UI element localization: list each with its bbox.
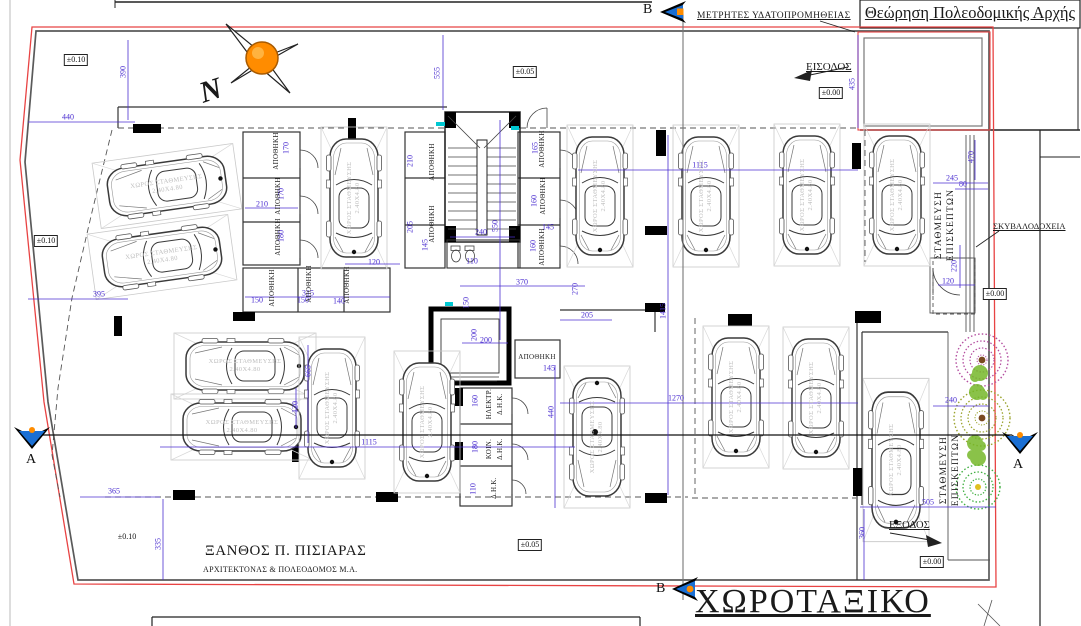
dimension-label: 395	[93, 290, 105, 299]
dimension-label: 505	[922, 498, 934, 507]
dimension-label: 80	[959, 180, 967, 189]
section-letter-b-top: B	[643, 2, 652, 18]
dimension-label: 240	[945, 396, 957, 405]
sun-icon	[246, 42, 278, 74]
water-meters-label: ΜΕΤΡΗΤΕΣ ΥΔΑΤΟΠΡΟΜΗΘΕΙΑΣ	[697, 11, 851, 21]
dimension-label: 370	[516, 278, 528, 287]
room-label: ΗΛΕΚΤΡ.	[485, 389, 493, 419]
elevation-marker: ±0.10	[64, 54, 88, 66]
dimension-label: 110	[469, 483, 478, 495]
room-label: ΑΠΟΘΗΚΗ	[268, 269, 276, 307]
room-label: Δ.Η.Κ.	[496, 438, 504, 460]
north-compass	[226, 24, 298, 93]
elevation-marker: ±0.00	[920, 556, 944, 568]
visitor-parking-label-bottom: ΣΤΑΘΜΕΥΣΗ ΕΠΙΣΚΕΠΤΩΝ	[938, 434, 962, 506]
parking-space-label: ΧΩΡΟΣ ΣΤΑΘΜΕΥΣΗΣ2.40X4.80	[209, 358, 282, 374]
room-label: ΑΠΟΘΗΚΗ	[274, 218, 282, 256]
parking-space-label: ΧΩΡΟΣ ΣΤΑΘΜΕΥΣΗΣ2.40X4.80	[808, 362, 824, 435]
parking-space-label: ΧΩΡΟΣ ΣΤΑΘΜΕΥΣΗΣ2.40X4.80	[324, 372, 340, 445]
dimension-label: 360	[858, 527, 867, 539]
architect-role: ΑΡΧΙΤΕΚΤΟΝΑΣ & ΠΟΛΕΟΔΟΜΟΣ Μ.Α.	[203, 565, 357, 574]
room-label: ΑΠΟΘΗΚΗ	[272, 132, 280, 170]
parking-space-label: ΧΩΡΟΣ ΣΤΑΘΜΕΥΣΗΣ2.40X4.80	[888, 424, 904, 497]
parking-space-label: ΧΩΡΟΣ ΣΤΑΘΜΕΥΣΗΣ2.40X4.80	[346, 162, 362, 235]
dimension-label: 160	[471, 395, 480, 407]
room-label: ΑΠΟΘΗΚΗ	[428, 143, 436, 181]
dimension-label: 365	[108, 487, 120, 496]
room-label: ΑΠΟΘΗΚΗ	[538, 130, 546, 168]
dimension-label: 160	[530, 195, 539, 207]
sheet-frame	[10, 0, 1080, 626]
dimension-label: 240	[475, 228, 487, 237]
elevation-marker: ±0.05	[513, 66, 537, 78]
dimension-label: 205	[581, 311, 593, 320]
dimension-label: 160	[529, 240, 538, 252]
dimension-label: 440	[62, 113, 74, 122]
room-label: ΑΠΟΘΗΚΗ	[274, 177, 282, 215]
room-label: ΑΠΟΘΗΚΗ	[428, 205, 436, 243]
room-label: ΑΠΟΘΗΚΗ	[518, 353, 556, 361]
bins-leader	[976, 231, 999, 247]
dimension-label: 120	[942, 277, 954, 286]
dimension-label: 145	[543, 364, 555, 373]
approval-title: Θεώρηση Πολεοδομικής Αρχής	[860, 3, 1080, 23]
section-marker-a-left	[14, 427, 50, 449]
parking-space-label: ΧΩΡΟΣ ΣΤΑΘΜΕΥΣΗΣ2.40X4.80	[419, 386, 435, 459]
parking-space-label: ΧΩΡΟΣ ΣΤΑΘΜΕΥΣΗΣ2.40X4.80	[206, 419, 279, 435]
dimension-label: 245	[946, 174, 958, 183]
landscape-strip	[954, 334, 1010, 509]
parking-space-label: ΧΩΡΟΣ ΣΤΑΘΜΕΥΣΗΣ2.40X4.80	[728, 361, 744, 434]
dimension-label: 270	[571, 283, 580, 295]
drawing-title: ΧΩΡΟΤΑΞΙΚΟ	[695, 583, 931, 621]
section-letter-b-bottom: B	[656, 581, 665, 597]
dimension-label: 170	[282, 142, 291, 154]
section-letter-a-right: A	[1013, 457, 1023, 473]
elevation-marker: ±0.10	[34, 235, 58, 247]
dimension-label: 220	[950, 260, 959, 272]
room-label: Δ.Η.Κ.	[490, 477, 498, 499]
room-label: Δ.Η.Κ.	[496, 393, 504, 415]
elevation-marker: ±0.05	[518, 539, 542, 551]
dimension-label: 110	[466, 257, 478, 266]
dimension-label: 200	[470, 329, 479, 341]
entrance-label: ΕΙΣΟΔΟΣ	[806, 61, 852, 73]
room-label: ΑΠΟΘΗΚΗ	[305, 265, 313, 303]
dimension-label: 550	[491, 220, 500, 232]
dimension-label: 210	[406, 155, 415, 167]
dimension-label: 470	[967, 151, 976, 163]
dimension-label: 120	[368, 258, 380, 267]
dimension-label: 665	[304, 365, 313, 377]
dimension-label: 555	[433, 67, 442, 79]
visitor-parking-label-top: ΣΤΑΘΜΕΥΣΗ ΕΠΙΣΚΕΠΤΩΝ	[933, 189, 957, 261]
bushes	[967, 365, 988, 466]
section-marker-a-right	[1002, 432, 1038, 454]
dimension-label: 440	[547, 406, 556, 418]
parking-space-label: ΧΩΡΟΣ ΣΤΑΘΜΕΥΣΗΣ2.40X4.80	[799, 159, 815, 232]
dimension-label: 180	[471, 441, 480, 453]
tree-green	[956, 465, 1000, 509]
elevation-marker: ±0.00	[983, 288, 1007, 300]
elevation-marker: ±0.10	[116, 532, 138, 542]
dimension-label: 205	[406, 221, 415, 233]
stairwell	[445, 112, 520, 268]
dimension-label: 150	[462, 297, 471, 309]
room-label: ΑΠΟΘΗΚΗ	[538, 228, 546, 266]
dimension-label: 335	[154, 538, 163, 550]
exit-arrow-icon	[926, 535, 942, 547]
parking-space-label: ΧΩΡΟΣ ΣΤΑΘΜΕΥΣΗΣ2.40X4.80	[592, 160, 608, 233]
dimension-label: 390	[119, 66, 128, 78]
dimension-label: 150	[251, 296, 263, 305]
dimension-label: 1270	[668, 394, 684, 403]
parking-space-label: ΧΩΡΟΣ ΣΤΑΘΜΕΥΣΗΣ2.40X4.80	[698, 160, 714, 233]
exit-label: ΕΞΟΔΟΣ	[889, 520, 930, 531]
dimension-label: 1115	[361, 438, 376, 447]
parking-space-label: ΧΩΡΟΣ ΣΤΑΘΜΕΥΣΗΣ2.40X4.80	[889, 159, 905, 232]
room-label: ΑΠΟΘΗΚΗ	[343, 266, 351, 304]
architect-name: ΞΑΝΘΟΣ Π. ΠΙΣΙΑΡΑΣ	[205, 543, 367, 560]
plan-drawing	[0, 0, 1081, 626]
entrance-building	[858, 32, 990, 130]
room-label: ΑΠΟΘΗΚΗ	[539, 177, 547, 215]
parking-space-label: ΧΩΡΟΣ ΣΤΑΘΜΕΥΣΗΣ2.40X4.80	[589, 401, 605, 474]
section-marker-b-top	[660, 1, 686, 23]
bins-label: ΣΚΥΒΑΛΟΔΟΧΕΙΑ	[993, 221, 1066, 231]
dimension-label: 1415	[659, 303, 668, 319]
elevation-marker: ±0.00	[819, 87, 843, 99]
dimension-label: 120	[291, 401, 300, 413]
section-letter-a-left: A	[26, 452, 36, 468]
dimension-label: 435	[848, 78, 857, 90]
site-plan-sheet: 3904405554351115245470802201203952101701…	[0, 0, 1081, 626]
dimension-label: 200	[480, 336, 492, 345]
dimension-label: 210	[256, 200, 268, 209]
room-label: ΚΟΙΝ.	[485, 439, 493, 459]
